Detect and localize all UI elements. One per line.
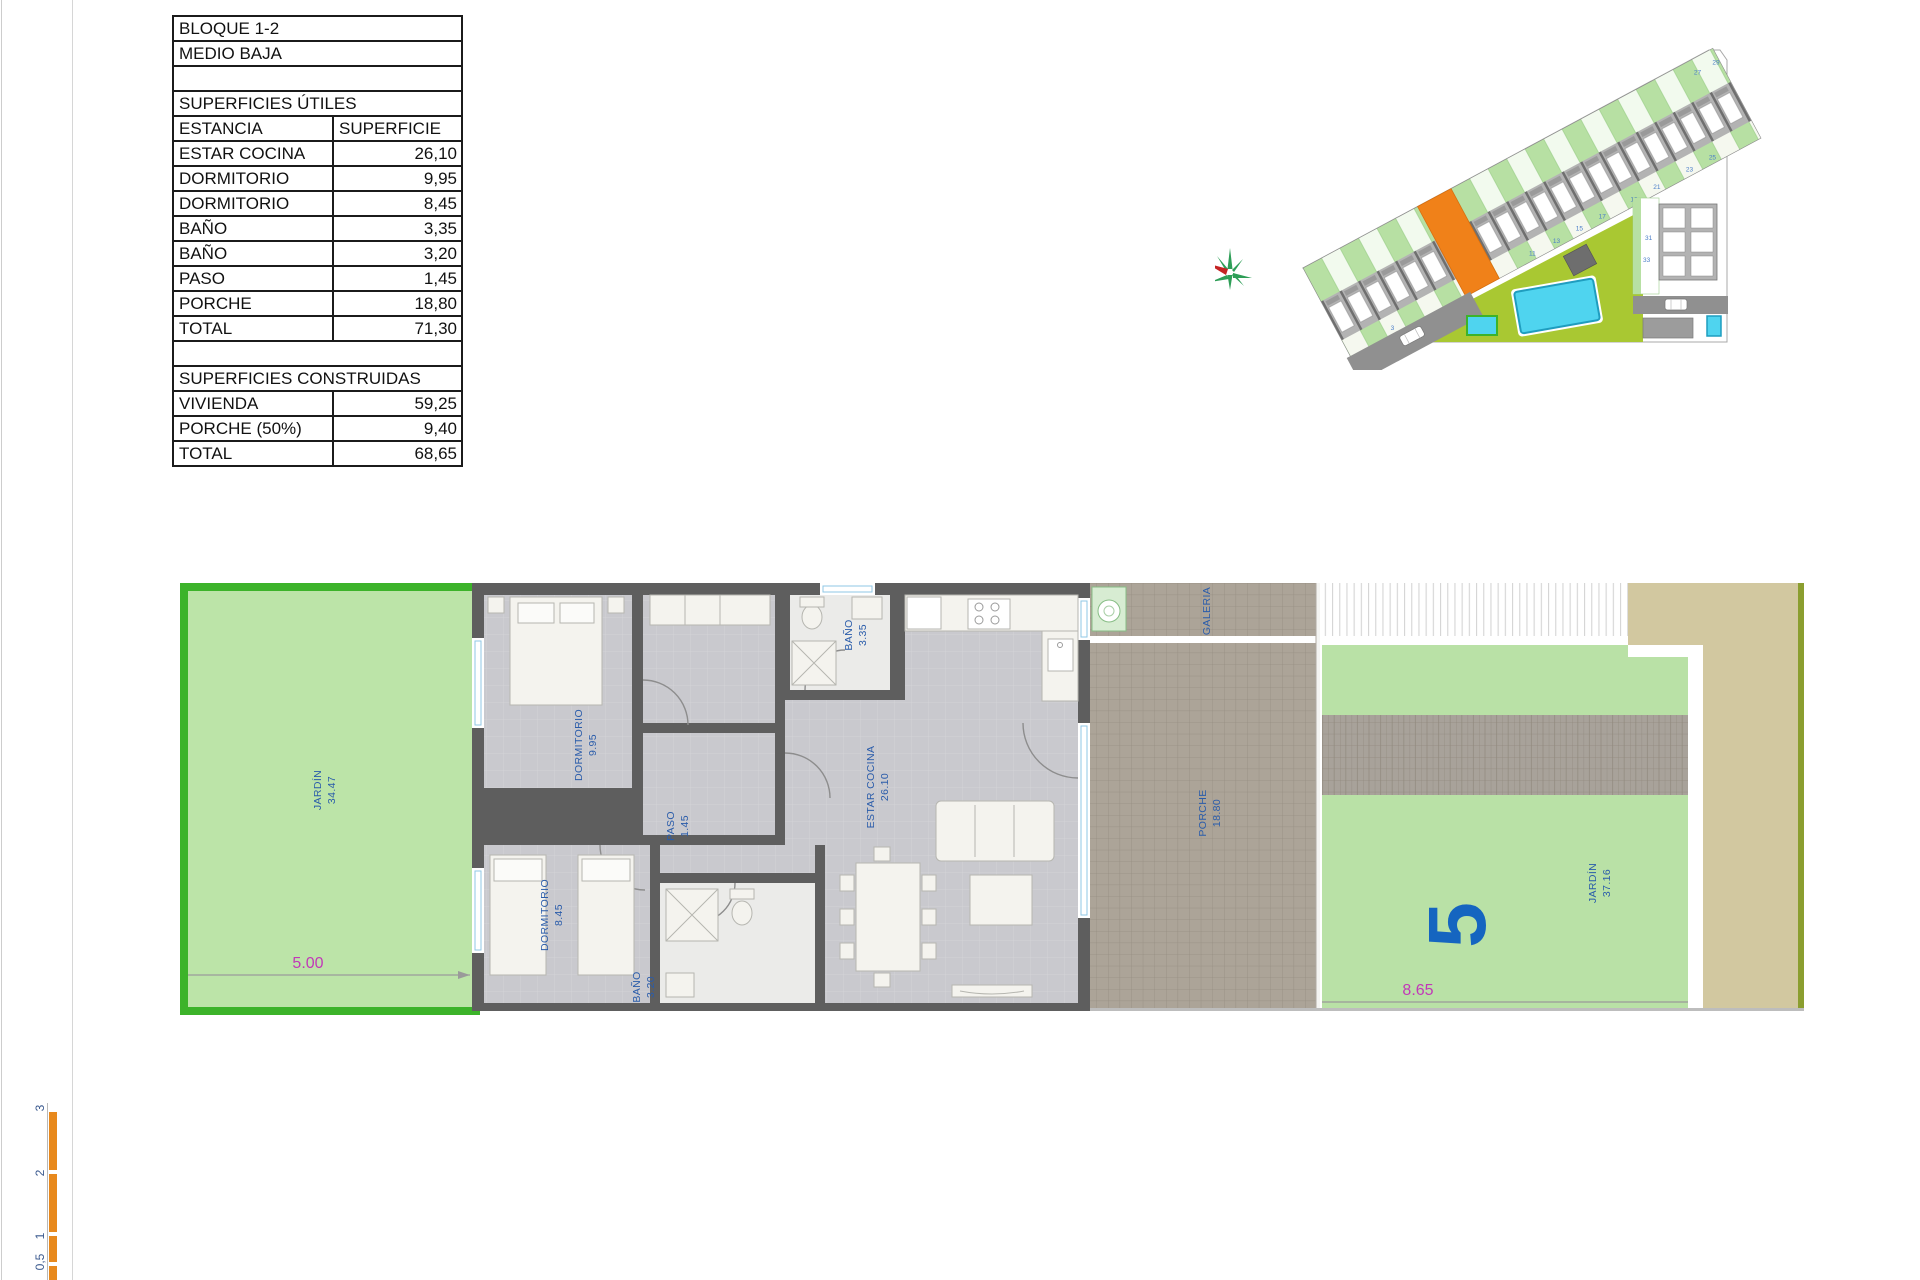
window-icon [472, 868, 484, 953]
label-paso: PASO [665, 811, 677, 841]
unit-number: 13 [1553, 238, 1561, 245]
toilet-icon [732, 901, 752, 925]
floor-plan-svg: 5.00 8.65 JARDÍN 34.47 DORMITORIO 9.95 B… [180, 583, 1805, 1015]
label-dormitorio-1-area: 9.95 [587, 734, 599, 756]
compass-rose-icon [1215, 248, 1252, 290]
coffee-table [970, 875, 1032, 925]
room-name: BAÑO [173, 241, 333, 266]
sofa-icon [936, 801, 1054, 861]
unit-number: 15 [1576, 226, 1584, 233]
unit-number: 23 [1686, 167, 1694, 174]
room-area: 9,95 [333, 166, 462, 191]
label-bano-1: BAÑO [842, 619, 855, 650]
room-name: PORCHE (50%) [173, 416, 333, 441]
unit-number: 17 [1599, 213, 1607, 220]
room-area: 18,80 [333, 291, 462, 316]
wardrobe [650, 595, 770, 625]
back-garden-lower [1322, 795, 1688, 1008]
scale-segment [49, 1174, 57, 1232]
svg-text:8.65: 8.65 [1402, 982, 1433, 999]
label-bano-2-area: 3.20 [645, 976, 657, 998]
label-porche-area: 18.80 [1211, 799, 1223, 827]
unit-number-big: 5 [1412, 902, 1503, 948]
unit-number: 27 [1694, 69, 1702, 76]
site-plan-svg: 3 11 13 15 17 19 21 23 25 27 29 [1215, 40, 1815, 370]
scale-segment [49, 1266, 57, 1280]
terrace-border [1628, 645, 1703, 657]
room-area: 59,25 [333, 391, 462, 416]
dining-table [856, 863, 920, 971]
total-label: TOTAL [173, 441, 333, 466]
total-value: 71,30 [333, 316, 462, 341]
toilet-icon [802, 605, 822, 629]
label-dormitorio-2: DORMITORIO [539, 879, 551, 951]
corner-pool [1707, 316, 1721, 336]
built-surfaces-title: SUPERFICIES CONSTRUIDAS [173, 366, 462, 391]
table-row: DORMITORIO8,45 [173, 191, 462, 216]
room-name: DORMITORIO [173, 166, 333, 191]
room-name: PORCHE [173, 291, 333, 316]
room-closet [660, 845, 815, 873]
table-row: BAÑO3,20 [173, 241, 462, 266]
surface-areas-table: BLOQUE 1-2 MEDIO BAJA SUPERFICIES ÚTILES… [172, 15, 463, 467]
room-name: VIVIENDA [173, 391, 333, 416]
room-area: 26,10 [333, 141, 462, 166]
galeria-separator [1090, 636, 1317, 643]
room-area: 9,40 [333, 416, 462, 441]
label-estar-cocina-area: 26.10 [879, 773, 891, 801]
table-row: BAÑO3,35 [173, 216, 462, 241]
table-row-total: TOTAL68,65 [173, 441, 462, 466]
useful-surfaces-title: SUPERFICIES ÚTILES [173, 91, 462, 116]
spacer-row [173, 341, 462, 366]
window-icon [1078, 598, 1090, 640]
label-jardin-back-area: 37.16 [1601, 869, 1613, 897]
washing-machine-icon [1092, 587, 1126, 631]
room-area: 3,20 [333, 241, 462, 266]
unit-number: 29 [1712, 59, 1720, 66]
room-area: 8,45 [333, 191, 462, 216]
svg-text:5.00: 5.00 [292, 955, 323, 972]
unit-number: 11 [1529, 251, 1536, 258]
page-margin-line-right [72, 0, 73, 1280]
label-jardin-front: JARDÍN [311, 770, 324, 810]
label-bano-1-area: 3.35 [857, 624, 869, 646]
table-row: ESTAR COCINA26,10 [173, 141, 462, 166]
table-row: PORCHE (50%)9,40 [173, 416, 462, 441]
label-paso-area: 1.45 [679, 815, 691, 837]
plot-edge-olive [1798, 583, 1804, 1008]
terrace-border [1688, 657, 1703, 1008]
scale-label: 2 [33, 1160, 45, 1186]
kids-pool [1467, 316, 1497, 335]
room-paso [643, 733, 775, 835]
pergola-hatch [1322, 583, 1628, 636]
washbasin-icon [852, 597, 882, 619]
scale-label: 1 [33, 1223, 45, 1249]
table-row: DORMITORIO9,95 [173, 166, 462, 191]
room-name: BAÑO [173, 216, 333, 241]
window-icon [472, 638, 484, 728]
block-unit-number: 33 [1643, 257, 1651, 264]
scale-segment [49, 1112, 57, 1170]
tv-bench [952, 985, 1032, 997]
table-row: PASO1,45 [173, 266, 462, 291]
table-row: PORCHE18,80 [173, 291, 462, 316]
label-jardin-front-area: 34.47 [326, 776, 338, 804]
label-dormitorio-1: DORMITORIO [573, 709, 585, 781]
car-icon [1665, 299, 1687, 310]
sliding-door [1078, 723, 1090, 918]
room-area: 3,35 [333, 216, 462, 241]
unit-number: 21 [1653, 184, 1661, 191]
neighbor-terrace-lower [1703, 657, 1798, 1008]
room-name: ESTAR COCINA [173, 141, 333, 166]
hob-icon [968, 599, 1010, 629]
unit-number: 3 [1391, 325, 1395, 332]
label-estar-cocina: ESTAR COCINA [865, 746, 877, 829]
room-area: 1,45 [333, 266, 462, 291]
plan-bottom-line [1090, 1008, 1804, 1011]
label-jardin-back: JARDÍN [1586, 863, 1599, 903]
label-dormitorio-2-area: 8.45 [553, 904, 565, 926]
total-label: TOTAL [173, 316, 333, 341]
block-unit-number: 31 [1645, 235, 1653, 242]
scale-bar: 3 2 1 0,5 [47, 1103, 61, 1280]
block-title: BLOQUE 1-2 [173, 16, 462, 41]
scale-bar-rail [47, 1103, 48, 1280]
scale-label: 3 [33, 1095, 45, 1121]
scale-segment [49, 1236, 57, 1262]
col-header-area: SUPERFICIE [333, 116, 462, 141]
col-header-room: ESTANCIA [173, 116, 333, 141]
window-icon [820, 583, 875, 595]
label-bano-2: BAÑO [630, 971, 643, 1002]
room-name: PASO [173, 266, 333, 291]
total-value: 68,65 [333, 441, 462, 466]
label-porche: PORCHE [1197, 789, 1209, 836]
spacer-row [173, 66, 462, 91]
washbasin-icon [666, 973, 694, 997]
unit-number: 25 [1709, 154, 1717, 161]
table-row-total: TOTAL71,30 [173, 316, 462, 341]
room-name: DORMITORIO [173, 191, 333, 216]
garden-path-tiled [1322, 715, 1688, 795]
table-row: VIVIENDA59,25 [173, 391, 462, 416]
apartment-block [1633, 198, 1717, 294]
page-margin-line-left [1, 0, 2, 1280]
scale-label: 0,5 [33, 1249, 45, 1275]
floor-title: MEDIO BAJA [173, 41, 462, 66]
label-galeria: GALERIA [1201, 587, 1213, 635]
garage-building [1643, 318, 1693, 338]
sink-icon [1048, 639, 1073, 671]
